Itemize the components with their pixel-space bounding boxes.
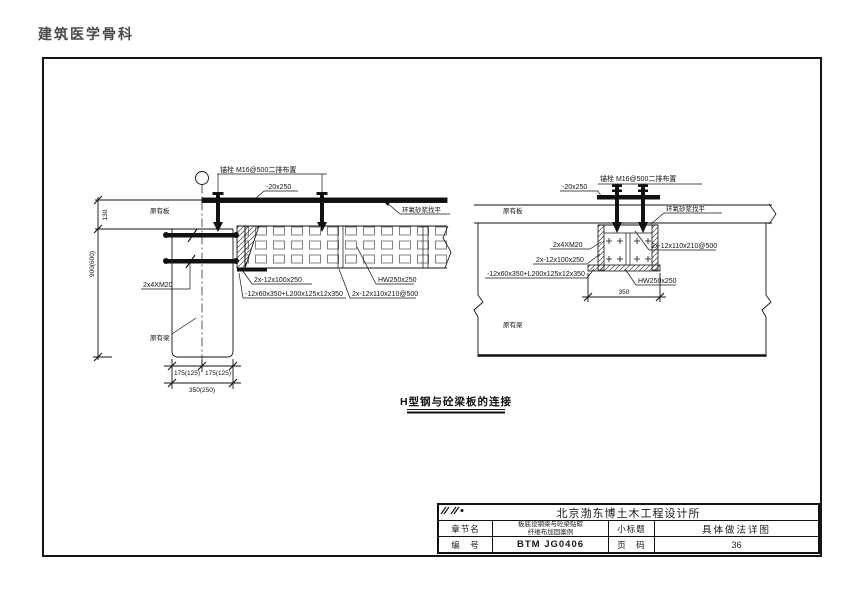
grid-axis-bubble xyxy=(196,172,209,185)
title-block-company-row: 北京渤东博土木工程设计所 xyxy=(439,505,818,521)
company-name: 北京渤东博土木工程设计所 xyxy=(557,505,701,521)
right-bolts-label: 2x4XM20 xyxy=(553,242,583,249)
left-stiffener-label: 2x-12x110x210@500 xyxy=(352,291,418,298)
right-packing-plate-label: 2x-12x100x250 xyxy=(536,257,584,264)
dim-350: 350 xyxy=(619,289,630,296)
title-block: 北京渤东博土木工程设计所 章节名 板底设钢梁与砼梁贴碳 纤维布加固案例 小标题 … xyxy=(437,503,820,554)
drawing-sheet: 建筑医学骨科 xyxy=(0,0,863,604)
right-beam-label: 原有梁 xyxy=(503,320,523,329)
detail-title-text: H型钢与砼梁板的连接 xyxy=(400,395,512,408)
left-bolts-label: 2x4XM20 xyxy=(143,282,173,289)
left-hbeam-label: HW250x250 xyxy=(378,277,417,284)
subtitle-value: 具体做法详图 xyxy=(655,521,818,536)
chapter-line2: 纤维布加固案例 xyxy=(518,529,583,537)
left-beam-label: 原有梁 xyxy=(150,333,170,342)
right-mortar-label: 环氧砂浆找平 xyxy=(666,204,706,213)
right-hbeam-label: HW250x250 xyxy=(638,278,677,285)
left-mortar-label: 环氧砂浆找平 xyxy=(402,205,442,214)
beam-left-edge xyxy=(474,223,483,357)
title-block-row-number: 编 号 BTM JG0406 页 码 36 xyxy=(439,537,818,552)
left-packing-plate-label: 2x-12x100x250 xyxy=(254,277,302,284)
page-label: 页 码 xyxy=(609,537,655,552)
right-detail-cross-section: -20x250 锚栓 M16@500二排布置 原有板 环氧砂浆找平 2x4XM2… xyxy=(474,174,776,357)
dim-130: 130 xyxy=(102,209,109,220)
left-plate-label: -20x250 xyxy=(266,184,291,191)
right-anchor-bolt-label: 锚栓 M16@500二排布置 xyxy=(600,174,676,183)
break-symbol xyxy=(769,204,776,224)
left-detail-section-view: 锚栓 M16@500二排布置 -20x250 原有板 环氧砂浆找平 2x4XM2… xyxy=(89,165,451,394)
right-plate-label: -20x250 xyxy=(562,184,587,191)
bottom-plate-edge xyxy=(237,268,267,272)
beam-right-edge xyxy=(762,223,771,357)
bolt-cross-marks xyxy=(606,238,651,262)
top-steel-plate xyxy=(597,195,660,200)
number-label: 编 号 xyxy=(439,537,493,552)
subtitle-label: 小标题 xyxy=(609,521,655,536)
dim-175-right: 175(125) xyxy=(205,370,231,377)
dim-900-600: 900(600) xyxy=(89,251,96,277)
title-block-row-chapter: 章节名 板底设钢梁与砼梁贴碳 纤维布加固案例 小标题 具体做法详图 xyxy=(439,521,818,537)
page-number: 36 xyxy=(655,537,818,552)
design-institute-logo-icon xyxy=(439,505,465,516)
chapter-label: 章节名 xyxy=(439,521,493,536)
through-bolt-bars xyxy=(163,232,239,264)
chapter-value: 板底设钢梁与砼梁贴碳 纤维布加固案例 xyxy=(493,521,609,536)
left-anchor-bolt-label: 锚栓 M16@500二排布置 xyxy=(220,165,296,174)
steel-beam-elevation-band xyxy=(237,226,451,272)
drawing-number: BTM JG0406 xyxy=(493,537,609,552)
right-bottom-plate-label: -12x60x350+L200x125x12x350 xyxy=(487,271,585,278)
chapter-line1: 板底设钢梁与砼梁贴碳 xyxy=(518,521,583,529)
left-bottom-plate-label: -12x60x350+L200x125x12x350 xyxy=(245,291,343,298)
dim-350-250: 350(250) xyxy=(189,387,215,394)
right-slab-label: 原有板 xyxy=(503,206,523,215)
dim-175-left: 175(125) xyxy=(174,370,200,377)
anchor-bolts xyxy=(612,184,648,233)
detail-title: H型钢与砼梁板的连接 xyxy=(400,395,512,413)
right-stiffener-label: 2x-12x110x210@500 xyxy=(651,243,717,250)
top-steel-plate xyxy=(202,198,447,203)
steel-assembly-cross-section xyxy=(588,225,660,271)
left-slab-label: 原有板 xyxy=(150,206,170,215)
